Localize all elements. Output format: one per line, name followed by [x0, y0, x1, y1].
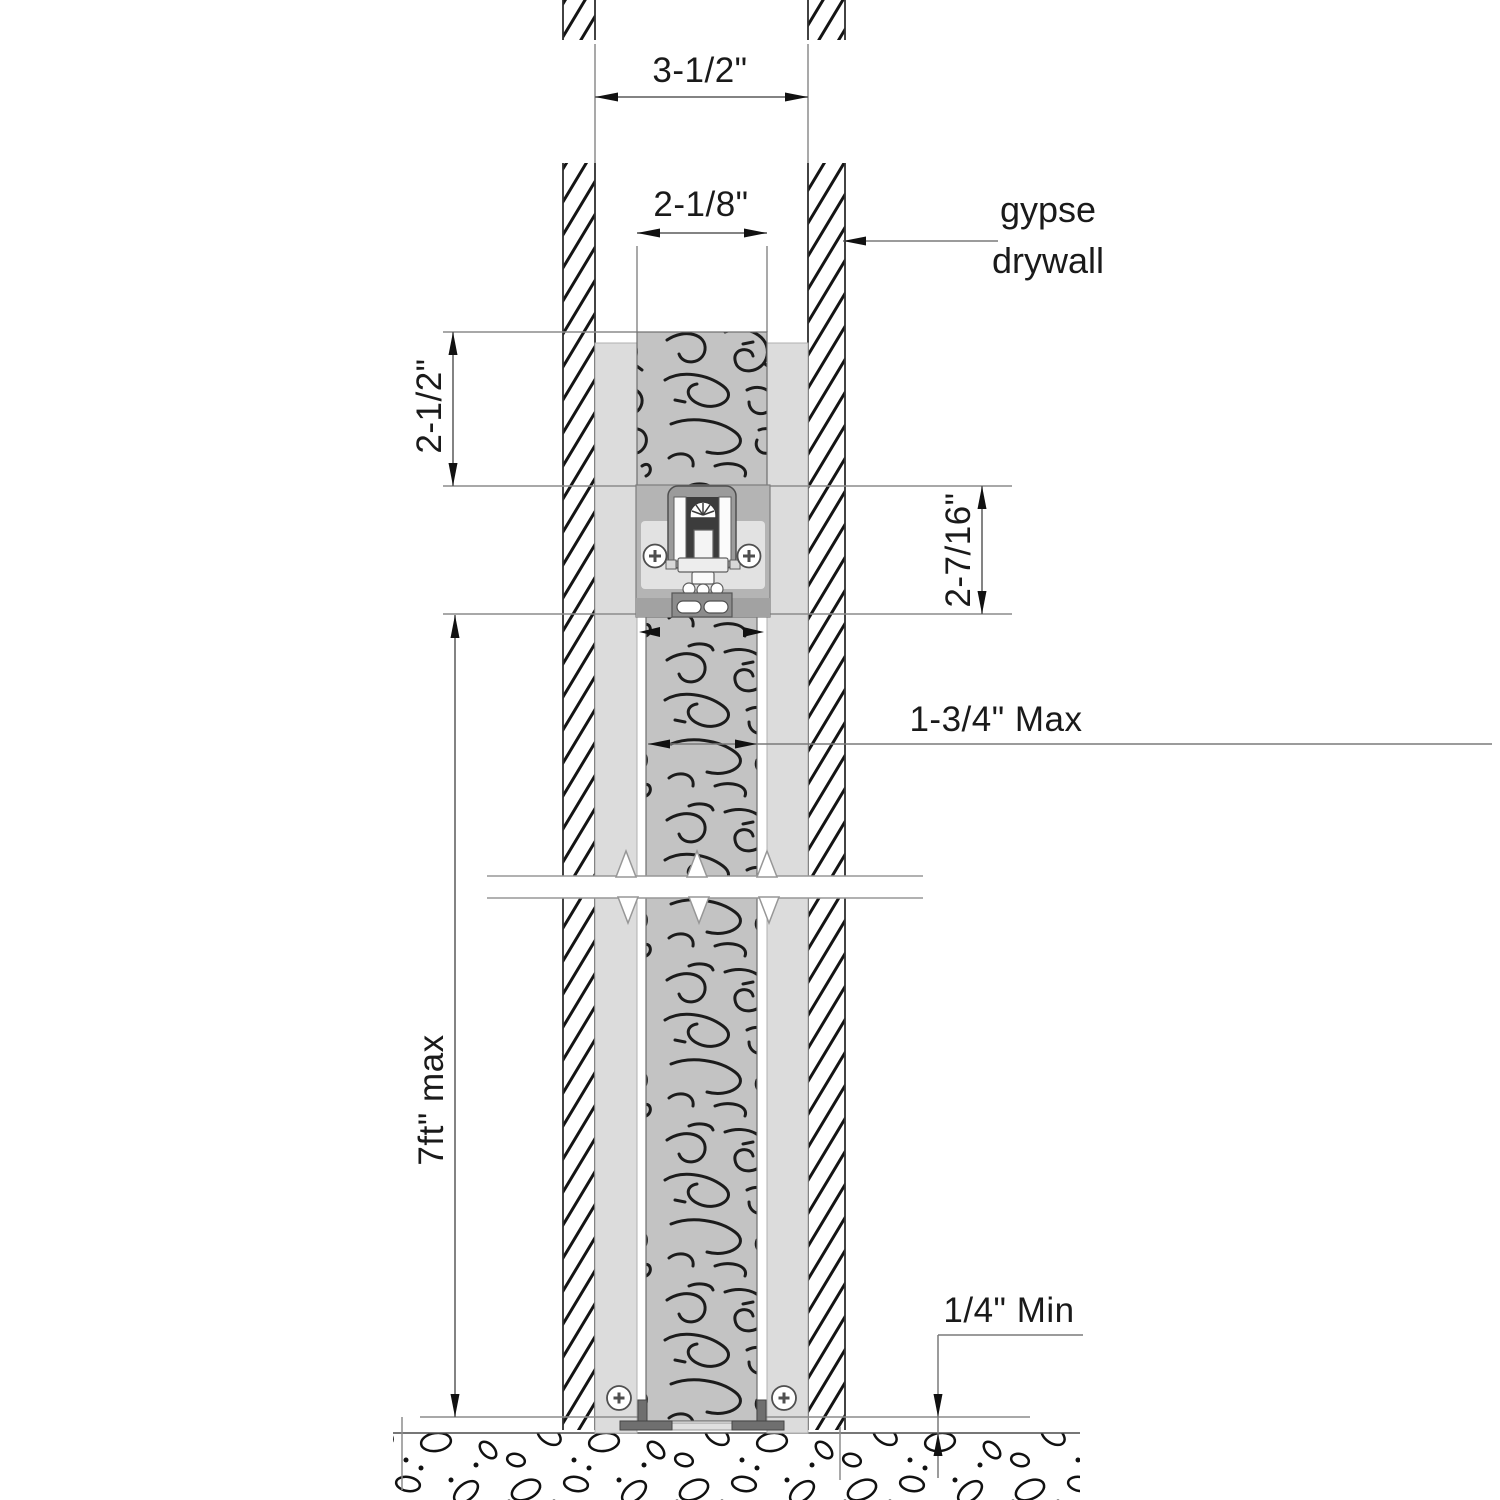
dim-track-space: 2-7/16" [939, 486, 987, 614]
bottom-guide-strip [670, 1423, 733, 1430]
dim-floor-clearance-label: 1/4" Min [943, 1291, 1074, 1330]
dim-arrow [451, 1394, 460, 1417]
track-roller-assembly [636, 485, 770, 617]
track-rail-right [719, 497, 731, 561]
dim-header-height: 2-1/2" [410, 332, 458, 486]
bracket-foot-right [704, 601, 728, 613]
dim-arrow [595, 93, 618, 102]
track-rail-left [674, 497, 686, 561]
right-wall-hatch [808, 163, 845, 1430]
dim-arrow [978, 591, 987, 614]
floor-gravel-fill [393, 1433, 1080, 1500]
wall-material-callout: gypse drywall [843, 189, 1104, 281]
left-drywall-panel [563, 163, 595, 1430]
dim-arrow [934, 1394, 943, 1417]
left-stub-hatch [563, 0, 595, 40]
base-screw-left [607, 1386, 631, 1410]
base-screw-right [772, 1386, 796, 1410]
left-drywall-top-stub [563, 0, 595, 40]
drawing-svg: 3-1/2" 2-1/8" 2-1/2" 2-7/16" 7ft" max 1-… [0, 0, 1500, 1500]
track-screw-left [644, 545, 667, 568]
hanger-stem [694, 530, 713, 561]
dim-door-thickness-label: 1-3/4" Max [909, 700, 1082, 739]
dim-arrow [744, 229, 767, 238]
dim-track-space-label: 2-7/16" [939, 492, 978, 607]
dim-door-height-label: 7ft" max [412, 1034, 451, 1165]
dim-header-width: 2-1/8" [637, 185, 767, 238]
left-wall-hatch [563, 163, 595, 1430]
bracket-foot-left [677, 601, 701, 613]
hanger-flange [678, 558, 728, 572]
pocket-door-panel [646, 617, 757, 1421]
dim-arrow [637, 229, 660, 238]
right-drywall-top-stub [808, 0, 845, 40]
hanger-nut [692, 572, 714, 584]
dim-door-height: 7ft" max [412, 615, 460, 1417]
wall-material-label-line1: gypse [1000, 189, 1096, 230]
dim-wall-opening: 3-1/2" [595, 51, 808, 102]
break-band [487, 876, 923, 898]
track-screw-right [738, 545, 761, 568]
leader-arrow [843, 237, 866, 246]
dim-arrow [449, 332, 458, 355]
dim-arrow [978, 486, 987, 509]
dim-arrow [785, 93, 808, 102]
wall-material-label-line2: drywall [992, 240, 1104, 281]
dim-arrow [449, 463, 458, 486]
dim-header-width-label: 2-1/8" [653, 185, 748, 224]
dim-wall-opening-label: 3-1/2" [652, 51, 747, 90]
dim-header-height-label: 2-1/2" [410, 358, 449, 453]
right-stub-hatch [808, 0, 845, 40]
floor-slab [393, 1433, 1080, 1500]
pocket-door-section-drawing: 3-1/2" 2-1/8" 2-1/2" 2-7/16" 7ft" max 1-… [0, 0, 1500, 1500]
dim-arrow [451, 615, 460, 638]
door-header-wood [637, 332, 767, 486]
right-drywall-panel [808, 163, 845, 1430]
hanger-wing-left [666, 560, 676, 569]
